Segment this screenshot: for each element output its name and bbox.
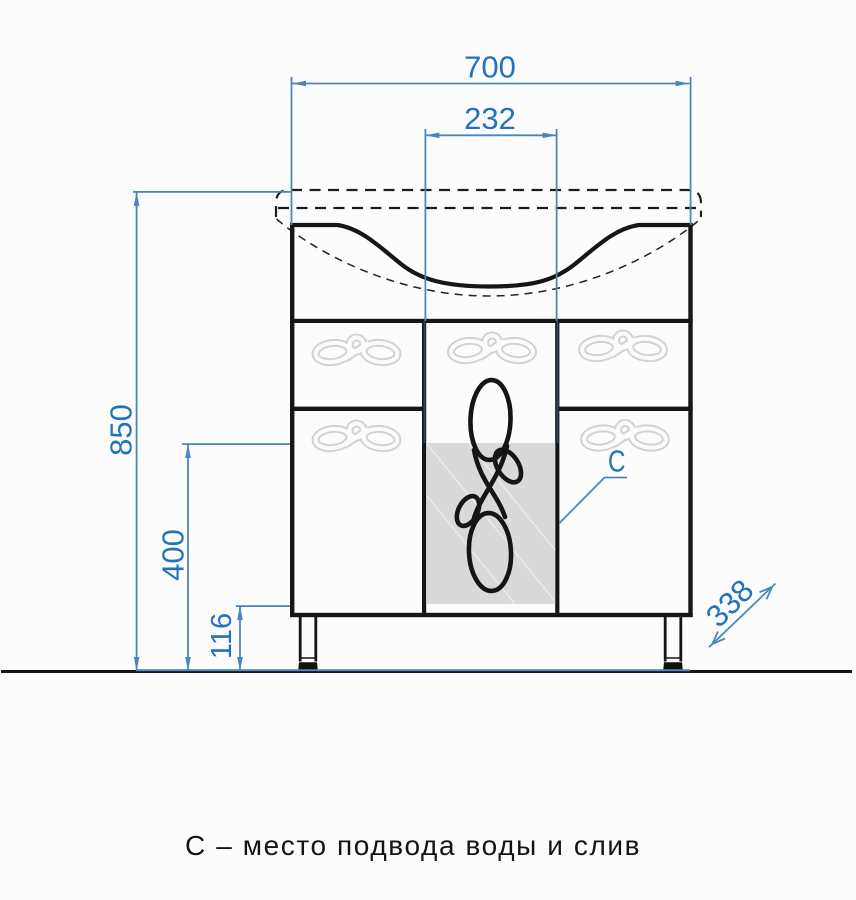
svg-text:400: 400 [156, 529, 191, 581]
svg-text:700: 700 [464, 50, 516, 85]
svg-text:С: С [608, 444, 625, 479]
svg-text:116: 116 [206, 613, 238, 659]
svg-text:850: 850 [104, 404, 139, 456]
svg-text:232: 232 [464, 101, 516, 136]
svg-text:С – место подвода воды и слив: С – место подвода воды и слив [185, 830, 641, 861]
